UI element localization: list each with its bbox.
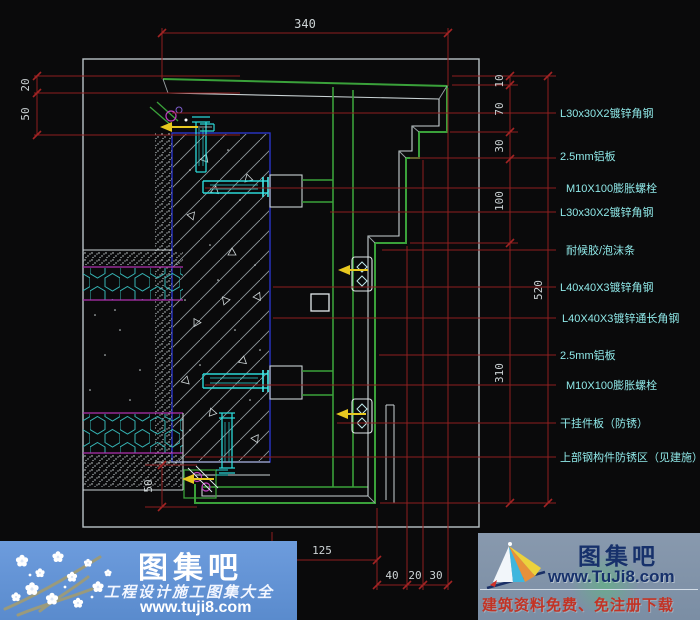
callout-angle-steel-3: L40x40X3镀锌角钢 bbox=[560, 280, 654, 294]
dim-right-1: 10 bbox=[493, 74, 506, 87]
weld-arrow-icon bbox=[336, 409, 348, 419]
screenshot-root: 340 20 50 10 70 30 100 310 520 50 125 40… bbox=[0, 0, 700, 620]
dim-right-2: 70 bbox=[493, 102, 506, 115]
dim-bottom-1: 125 bbox=[312, 544, 332, 557]
detail-drawing: 340 20 50 10 70 30 100 310 520 50 125 40… bbox=[0, 0, 700, 620]
dim-top: 340 bbox=[294, 17, 316, 31]
upper-panel-clip bbox=[338, 257, 372, 291]
divider bbox=[480, 589, 698, 590]
watermark-banner-right: 图集吧 www.TuJi8.com 建筑资料免费、免注册下载 bbox=[478, 533, 700, 620]
dim-left-upper: 20 bbox=[19, 78, 32, 91]
section-mark-square bbox=[311, 294, 329, 311]
dim-bottom-4: 30 bbox=[429, 569, 442, 582]
dim-right-4: 100 bbox=[493, 191, 506, 211]
callout-angle-steel-1: L30x30X2镀锌角钢 bbox=[560, 106, 654, 120]
callout-angle-steel-4: L40X40X3镀锌通长角钢 bbox=[562, 311, 679, 325]
site-name: 图集吧 bbox=[578, 537, 659, 571]
callout-hanging-panel: 干挂件板（防锈） bbox=[560, 416, 648, 430]
callout-aluminum-panel-2: 2.5mm铝板 bbox=[560, 348, 616, 362]
callout-angle-steel-2: L30x30X2镀锌角钢 bbox=[560, 205, 654, 219]
callout-labels: L30x30X2镀锌角钢 2.5mm铝板 M10X100膨胀螺栓 L30x30X… bbox=[560, 106, 700, 464]
weld-arrow-icon bbox=[160, 122, 172, 132]
watermark-banner-left: 图集吧 工程设计施工图集大全 www.tuji8.com bbox=[0, 541, 297, 620]
dim-right-overall: 520 bbox=[532, 280, 545, 300]
tuji8-logo-icon bbox=[483, 536, 549, 592]
callout-expansion-bolt-2: M10X100膨胀螺栓 bbox=[566, 378, 657, 392]
callout-expansion-bolt-1: M10X100膨胀螺栓 bbox=[566, 181, 657, 195]
dim-bottom-left: 50 bbox=[142, 479, 155, 492]
site-url: www.TuJi8.com bbox=[548, 567, 675, 587]
dimension-lines bbox=[34, 28, 556, 590]
lower-panel-clip bbox=[336, 399, 372, 433]
dim-right-5: 310 bbox=[493, 363, 506, 383]
dim-right-3: 30 bbox=[493, 139, 506, 152]
dim-bottom-2: 40 bbox=[385, 569, 398, 582]
callout-aluminum-panel-1: 2.5mm铝板 bbox=[560, 149, 616, 163]
sparse-dots bbox=[89, 309, 141, 401]
weld-arrow-icon bbox=[338, 265, 350, 275]
site-url: www.tuji8.com bbox=[140, 599, 251, 617]
callout-upper-steel-treatment: 上部钢构件防锈区（见建施） bbox=[560, 450, 700, 464]
dim-bottom-3: 20 bbox=[408, 569, 421, 582]
callout-sealant: 耐候胶/泡沫条 bbox=[566, 243, 635, 257]
dim-left-lower: 50 bbox=[19, 107, 32, 120]
site-tagline: 建筑资料免费、免注册下载 bbox=[482, 594, 674, 615]
bottom-corner-weld-cluster bbox=[182, 466, 228, 498]
